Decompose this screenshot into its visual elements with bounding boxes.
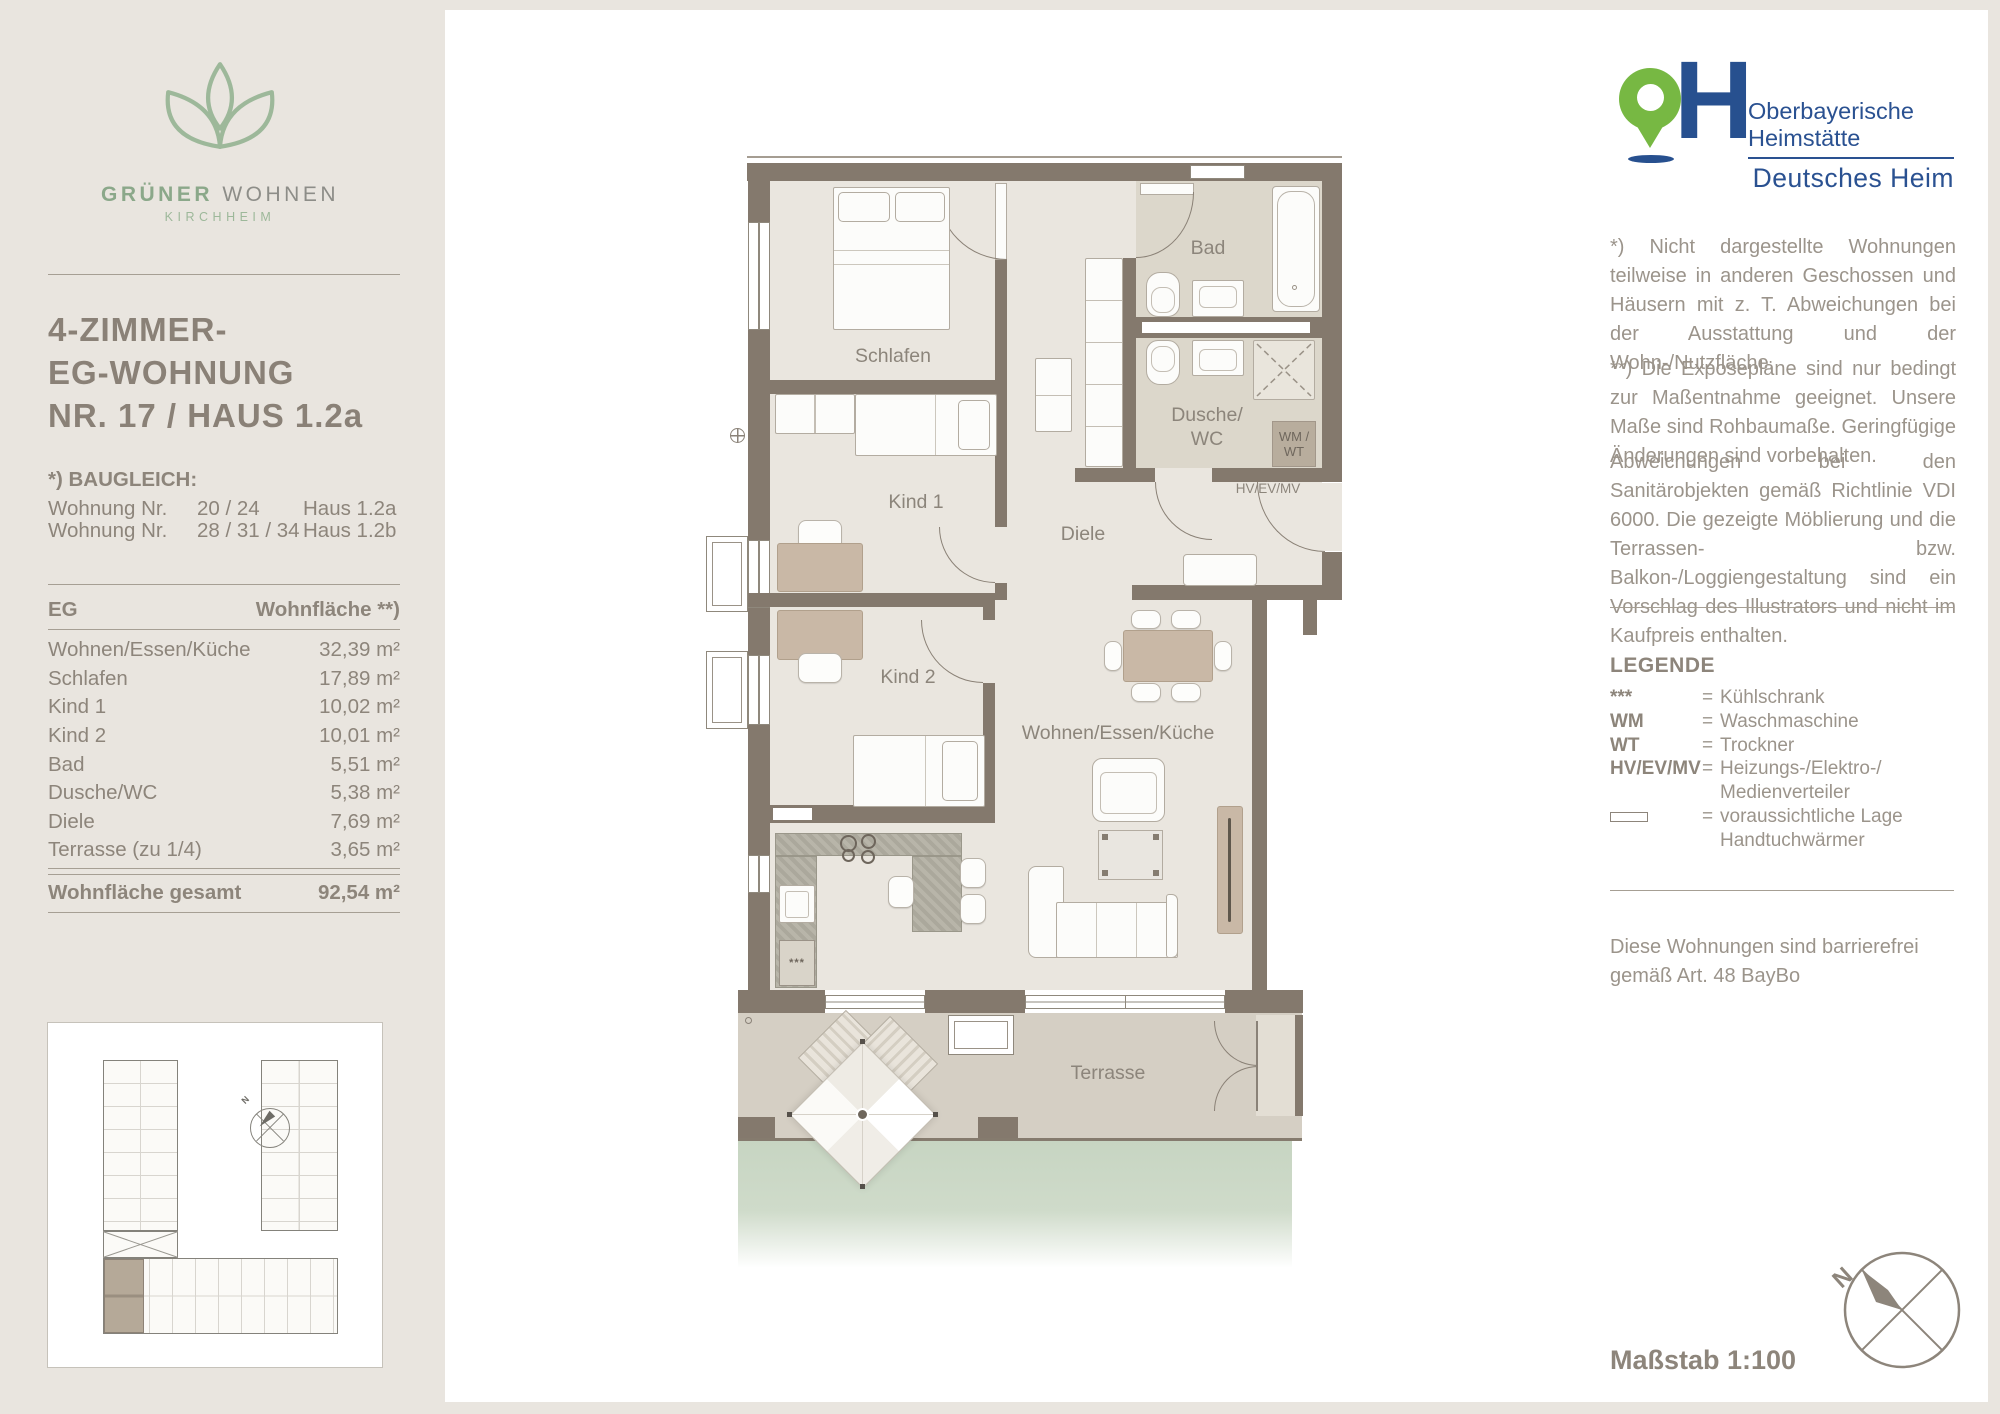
wall <box>1295 1015 1303 1116</box>
equals: = <box>1702 686 1720 710</box>
row-label: Schlafen <box>48 667 128 691</box>
accessibility-note: Diese Wohnungen sind barrierefrei gemäß … <box>1610 933 1942 991</box>
legend-text: Waschmaschine <box>1720 710 1859 734</box>
wardrobe <box>1085 258 1123 467</box>
scale-label: Maßstab 1:100 <box>1610 1345 1796 1376</box>
dining-chair <box>1131 610 1161 629</box>
toilet <box>1146 272 1180 317</box>
wall <box>748 380 1007 394</box>
sidebar-divider <box>48 584 400 585</box>
room-label-kind1: Kind 1 <box>888 491 943 514</box>
row-value: 10,02 m² <box>319 695 400 719</box>
pillow <box>958 400 990 450</box>
legend-text: Kühlschrank <box>1720 686 1825 710</box>
legend-text2: Medienverteiler <box>1720 781 1882 805</box>
shower-glass-icon <box>1254 341 1314 399</box>
wall <box>1132 585 1322 600</box>
fridge-symbol: *** <box>789 957 805 969</box>
window <box>748 655 770 725</box>
legend-heading: LEGENDE <box>1610 654 1956 678</box>
bar-chair <box>960 858 986 888</box>
publisher-name: Oberbayerische Heimstätte Deutsches Heim <box>1748 98 1954 192</box>
legend: LEGENDE *** = Kühlschrank WM = Waschmasc… <box>1610 654 1956 853</box>
room-label-kind2: Kind 2 <box>880 666 935 689</box>
bar-chair <box>888 876 914 908</box>
installation-wall-gap <box>1142 322 1310 333</box>
wall <box>748 330 770 540</box>
table-rule <box>48 912 400 913</box>
wall <box>995 260 1007 527</box>
dining-table <box>1123 630 1213 682</box>
area-table-header: EG Wohnfläche **) <box>48 598 400 622</box>
blanket-line <box>925 736 926 806</box>
baugleich-numbers: 28 / 31 / 34 <box>197 519 303 543</box>
table-header-wohnflaeche: Wohnfläche **) <box>256 598 400 622</box>
wall <box>1322 552 1342 600</box>
sofa-armrest <box>1166 894 1178 958</box>
sofa-seat <box>1056 902 1178 958</box>
equals: = <box>1702 734 1720 758</box>
lotus-icon <box>150 48 290 170</box>
table-foot <box>1153 834 1159 840</box>
equals: = <box>1702 757 1720 805</box>
lawn <box>738 1141 1292 1268</box>
sink <box>1192 280 1244 317</box>
wall <box>747 163 1342 181</box>
wall <box>1322 163 1342 482</box>
table-double-rule <box>48 868 400 875</box>
legend-symbol: *** <box>1610 686 1702 710</box>
row-label: Kind 2 <box>48 724 106 748</box>
chair <box>798 653 842 683</box>
storage-door-frame <box>1256 1021 1258 1111</box>
bar-chair <box>960 894 986 924</box>
kitchen-peninsula <box>912 856 962 932</box>
legend-symbol: WM <box>1610 710 1702 734</box>
room-label-wohnen: Wohnen/Essen/Küche <box>1022 722 1215 745</box>
planter-box <box>948 1015 1014 1055</box>
legend-row: WT = Trockner <box>1610 734 1956 758</box>
drain <box>1292 285 1297 290</box>
wardrobe <box>1035 358 1072 432</box>
baugleich-row: Wohnung Nr. 20 / 24 Haus 1.2a <box>48 498 400 520</box>
terrace-slider-window <box>1025 995 1225 1009</box>
wall <box>748 608 770 655</box>
drain-dot <box>745 1017 752 1024</box>
row-value: 10,01 m² <box>319 724 400 748</box>
publisher-brand-line: Deutsches Heim <box>1748 165 1954 192</box>
row-label: Bad <box>48 753 84 777</box>
armchair <box>1092 758 1165 822</box>
baugleich-house: Haus 1.2b <box>303 519 396 543</box>
stove-burner <box>842 849 855 862</box>
room-label-dusche-wc: Dusche/ WC <box>1152 403 1262 451</box>
row-label: Diele <box>48 810 95 834</box>
legend-symbol: WT <box>1610 734 1702 758</box>
row-value: 3,65 m² <box>331 838 401 862</box>
monogram-h: H <box>1674 46 1753 156</box>
stove-burner <box>861 834 876 849</box>
terrace-pillar <box>978 1117 1018 1140</box>
wall <box>995 583 1007 600</box>
baugleich-numbers: 20 / 24 <box>197 497 303 521</box>
pin-tip <box>1632 118 1668 148</box>
wall <box>983 607 995 620</box>
legend-row: WM = Waschmaschine <box>1610 710 1956 734</box>
baugleich-label: Wohnung Nr. <box>48 497 197 521</box>
wall <box>1252 600 1267 990</box>
brand-name-secondary: WOHNEN <box>213 183 339 206</box>
row-label: Kind 1 <box>48 695 106 719</box>
baugleich-label: Wohnung Nr. <box>48 519 197 543</box>
equals: = <box>1702 710 1720 734</box>
table-foot <box>1153 870 1159 876</box>
window-sill-box <box>706 651 748 729</box>
room-label-schlafen: Schlafen <box>855 345 931 368</box>
table-row: Dusche/WC5,38 m² <box>48 779 400 808</box>
dusche-line1: Dusche/ <box>1152 403 1262 427</box>
basin <box>785 891 809 918</box>
parasol-tip <box>787 1112 792 1117</box>
hall-bench <box>1183 554 1257 586</box>
parasol-tip <box>933 1112 938 1117</box>
compass-n-label: N <box>1830 1262 1858 1294</box>
dining-chair <box>1214 641 1232 671</box>
sideboard-handle <box>1228 818 1231 922</box>
window-sill-box <box>706 536 748 612</box>
right-divider <box>1610 607 1954 608</box>
brand-logo: GRÜNER WOHNEN KIRCHHEIM <box>30 48 410 224</box>
room-label-bad: Bad <box>1191 237 1226 260</box>
publisher-name-line1: Oberbayerische <box>1748 98 1954 125</box>
row-value: 7,69 m² <box>331 810 401 834</box>
legend-row: = voraussichtliche LageHandtuchwärmer <box>1610 805 1956 853</box>
blanket-line <box>834 250 949 251</box>
entrance-threshold <box>1322 483 1342 551</box>
sink <box>1192 340 1244 376</box>
row-label: Wohnen/Essen/Küche <box>48 638 250 662</box>
blanket-line <box>935 395 936 455</box>
title-line-1: 4-ZIMMER- <box>48 308 363 351</box>
wt-label: WT <box>1284 444 1304 459</box>
total-label: Wohnfläche gesamt <box>48 881 241 905</box>
window <box>825 995 925 1009</box>
site-plan-wing-left <box>103 1060 178 1231</box>
wall <box>748 725 770 855</box>
baugleich-block: *) BAUGLEICH: Wohnung Nr. 20 / 24 Haus 1… <box>48 468 400 542</box>
kitchen-sink <box>779 885 815 923</box>
wall <box>1303 600 1317 635</box>
bathtub-inner <box>1277 191 1315 307</box>
row-value: 32,39 m² <box>319 638 400 662</box>
table-total-row: Wohnfläche gesamt 92,54 m² <box>48 875 400 912</box>
wall <box>1225 990 1303 1013</box>
basin <box>1199 349 1237 371</box>
brand-location: KIRCHHEIM <box>30 210 410 224</box>
wm-label: WM / <box>1279 429 1309 444</box>
legend-text: Heizungs-/Elektro-/ <box>1720 757 1882 781</box>
table-foot <box>1102 870 1108 876</box>
toilet-bowl <box>1151 287 1175 313</box>
level-marker-icon <box>730 428 745 443</box>
table-rule <box>48 629 400 630</box>
dusche-line2: WC <box>1152 427 1262 451</box>
total-value: 92,54 m² <box>318 881 400 905</box>
legend-row: *** = Kühlschrank <box>1610 686 1956 710</box>
wall <box>748 593 995 607</box>
legend-symbol: HV/EV/MV <box>1610 757 1702 805</box>
area-table: EG Wohnfläche **) Wohnen/Essen/Küche32,3… <box>48 598 400 913</box>
row-value: 5,51 m² <box>331 753 401 777</box>
sofa-cushion-line <box>1096 903 1097 957</box>
highlighted-unit <box>104 1259 144 1333</box>
table-header-eg: EG <box>48 598 78 622</box>
handtuchwaermer-symbol <box>1610 812 1648 822</box>
window <box>1190 165 1245 179</box>
table-row: Schlafen17,89 m² <box>48 665 400 694</box>
title-line-3: NR. 17 / HAUS 1.2a <box>48 394 363 437</box>
table-row: Kind 210,01 m² <box>48 722 400 751</box>
equals: = <box>1702 805 1720 853</box>
dining-chair <box>1171 610 1201 629</box>
wall <box>1123 258 1136 482</box>
parasol-tip <box>860 1039 865 1044</box>
desk <box>777 543 863 592</box>
legend-text2: Handtuchwärmer <box>1720 829 1903 853</box>
table-row: Diele7,69 m² <box>48 808 400 837</box>
table-foot <box>1102 834 1108 840</box>
dining-chair <box>1104 641 1122 671</box>
right-divider <box>1610 890 1954 891</box>
toilet-bowl <box>1151 346 1175 372</box>
dining-chair <box>1131 683 1161 702</box>
sofa-cushion-line <box>1136 903 1137 957</box>
washer-dryer-box: WM / WT <box>1272 421 1316 467</box>
window <box>748 855 770 893</box>
armchair-seat <box>1100 772 1157 814</box>
pillow <box>942 741 978 801</box>
row-label: Dusche/WC <box>48 781 157 805</box>
title-line-2: EG-WOHNUNG <box>48 351 363 394</box>
table-row: Terrasse (zu 1/4)3,65 m² <box>48 836 400 865</box>
basin <box>1199 286 1237 308</box>
pillow <box>895 192 945 222</box>
shower <box>1253 340 1315 400</box>
row-label: Terrasse (zu 1/4) <box>48 838 202 862</box>
parasol-tip <box>860 1184 865 1189</box>
row-value: 17,89 m² <box>319 667 400 691</box>
legend-symbol-cell <box>1610 805 1702 853</box>
wall <box>738 990 825 1013</box>
table-row: Wohnen/Essen/Küche32,39 m² <box>48 636 400 665</box>
wardrobe <box>775 394 855 434</box>
window <box>748 222 770 330</box>
baugleich-row: Wohnung Nr. 28 / 31 / 34 Haus 1.2b <box>48 520 400 542</box>
compass-n-label: N <box>239 1094 251 1106</box>
room-label-terrasse: Terrasse <box>1071 1062 1146 1085</box>
dining-chair <box>1171 683 1201 702</box>
label-hv-ev-mv: HV/EV/MV <box>1236 481 1301 496</box>
baugleich-heading: *) BAUGLEICH: <box>48 468 400 492</box>
wall-niche <box>773 808 812 820</box>
note-3: Abweichungen bei den Sanitärobjekten gem… <box>1610 448 1956 651</box>
legend-text: voraussichtliche Lage <box>1720 805 1903 829</box>
publisher-rule <box>1748 157 1954 159</box>
table-row: Kind 110,02 m² <box>48 693 400 722</box>
stove-burner <box>861 850 875 864</box>
bathtub <box>1272 186 1320 312</box>
wall <box>748 163 770 222</box>
table-row: Bad5,51 m² <box>48 750 400 779</box>
exterior-mask <box>1267 600 1344 990</box>
coffee-table <box>1098 830 1163 880</box>
legend-text: Trockner <box>1720 734 1794 758</box>
site-plan-map: N <box>47 1022 383 1368</box>
baugleich-house: Haus 1.2a <box>303 497 396 521</box>
toilet <box>1146 340 1180 385</box>
page-title: 4-ZIMMER- EG-WOHNUNG NR. 17 / HAUS 1.2a <box>48 308 363 437</box>
roof-edge-line <box>747 156 1342 158</box>
window-divider <box>1125 996 1126 1008</box>
sidebar-divider <box>48 274 400 275</box>
wall <box>1075 468 1155 482</box>
fridge: *** <box>779 940 815 986</box>
compass-icon: N <box>1830 1244 1962 1376</box>
blanket-line <box>834 264 949 265</box>
terrace-pillar <box>738 1117 775 1140</box>
wall <box>1212 468 1322 482</box>
wall <box>925 990 1025 1013</box>
publisher-name-line2: Heimstätte <box>1748 125 1954 152</box>
parasol-pole <box>856 1108 869 1121</box>
pillow <box>838 192 890 222</box>
row-value: 5,38 m² <box>331 781 401 805</box>
brand-name-primary: GRÜNER <box>101 183 213 206</box>
room-label-diele: Diele <box>1061 523 1105 546</box>
legend-row: HV/EV/MV = Heizungs-/Elektro-/Medienvert… <box>1610 757 1956 805</box>
terrace-storage-floor <box>1256 1015 1295 1116</box>
pin-shadow <box>1628 155 1674 163</box>
pin-hole <box>1637 84 1664 111</box>
